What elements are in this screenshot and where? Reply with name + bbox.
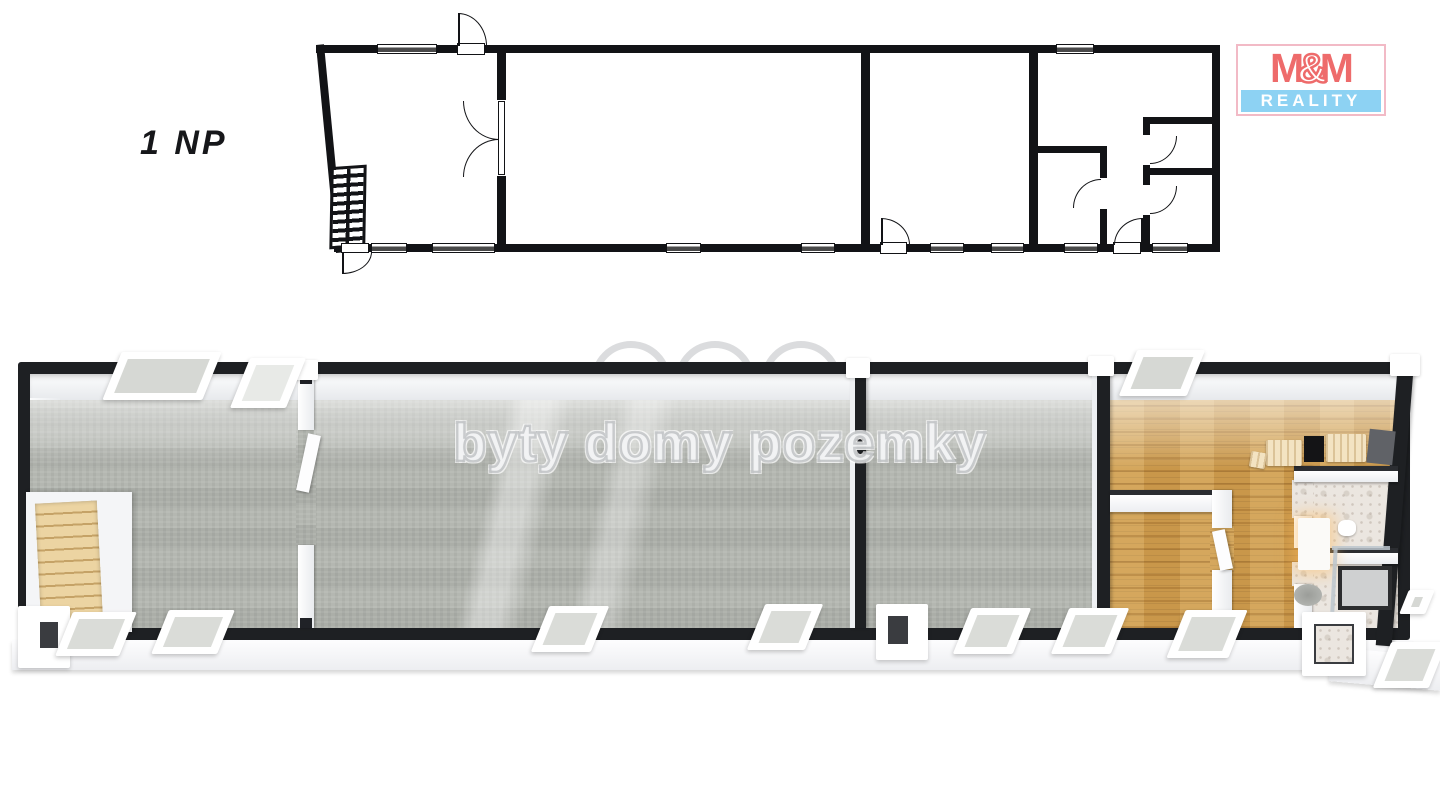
- double-door-arc-top: [463, 101, 499, 140]
- bath-mat: [1294, 584, 1322, 606]
- shower-tray: [1338, 566, 1392, 610]
- kitchen-cabinet: [1249, 451, 1268, 470]
- wall-inner-room-top: [1038, 146, 1104, 153]
- window-2d: [1056, 44, 1094, 54]
- window-glass: [114, 359, 210, 393]
- wall-cap: [1390, 354, 1420, 376]
- window-2d: [377, 44, 437, 54]
- kitchen-appliance: [1366, 429, 1395, 466]
- double-door-panel: [498, 101, 505, 175]
- door-arc: [1150, 186, 1177, 214]
- window-glass: [1131, 357, 1194, 389]
- kitchen-stove: [1304, 436, 1324, 462]
- wall-room3-hall: [1029, 53, 1038, 244]
- door-arc: [342, 252, 372, 274]
- floor-plan-2d: 1 NP: [0, 0, 1440, 300]
- window-3d: [102, 352, 221, 400]
- window-2d: [371, 243, 407, 253]
- wall-cap: [300, 618, 312, 628]
- window-glass: [1385, 649, 1436, 681]
- window-2d: [801, 243, 835, 253]
- wall3d-room3-hall: [1092, 374, 1110, 628]
- wall-cap: [1088, 356, 1114, 376]
- door-panel: [242, 365, 295, 401]
- window-glass: [67, 619, 125, 649]
- wall3d-room1-room2-lower: [298, 545, 314, 628]
- toilet: [1338, 520, 1356, 536]
- door-arc: [1150, 136, 1177, 164]
- door-arc: [1073, 179, 1101, 208]
- window-glass: [163, 617, 223, 647]
- door-opening-3d: [40, 622, 58, 648]
- floor-plan-3d: byty domy pozemky: [0, 330, 1440, 810]
- window-2d: [930, 243, 964, 253]
- window-2d: [432, 243, 495, 253]
- window-glass: [543, 613, 598, 645]
- window-2d: [991, 243, 1024, 253]
- watermark-text: byty domy pozemky: [440, 412, 1000, 474]
- window-glass: [965, 615, 1020, 647]
- wall-room2-room3: [861, 53, 870, 244]
- door-arc: [1114, 218, 1143, 245]
- wall3d-inner-room-right-upper: [1212, 490, 1232, 528]
- window-2d: [666, 243, 701, 253]
- floor-label: 1 NP: [140, 124, 228, 163]
- kitchen-counter: [1266, 440, 1302, 466]
- window-glass: [1063, 615, 1118, 647]
- kitchen-counter: [1326, 434, 1366, 462]
- door-opening-3d: [888, 616, 908, 644]
- double-door-arc-bottom: [463, 139, 499, 177]
- wall-bath-top: [1143, 117, 1212, 124]
- bathroom-vanity: [1298, 518, 1330, 570]
- staircase-2d: [329, 165, 366, 250]
- window-glass: [1411, 597, 1423, 607]
- wall-bath-middle: [1150, 168, 1212, 175]
- shower-glass-front: [1332, 546, 1390, 550]
- window-glass: [1178, 617, 1236, 651]
- window-2d: [1152, 243, 1188, 253]
- door-arc: [458, 13, 487, 46]
- window-glass: [759, 611, 812, 643]
- window-2d: [1064, 243, 1098, 253]
- wall3d-bath-top: [1294, 466, 1398, 482]
- wall-right: [1212, 45, 1220, 252]
- floor-plan-page: 1 NP: [0, 0, 1440, 810]
- wall-cap: [846, 358, 870, 378]
- logo-mm-text: M&M: [1238, 46, 1384, 88]
- mm-reality-logo: M&M REALITY: [1236, 44, 1386, 116]
- door-arc: [881, 218, 910, 245]
- logo-ampersand: &: [1297, 45, 1325, 91]
- logo-reality-text: REALITY: [1239, 88, 1383, 114]
- entrance-step: [1314, 624, 1354, 664]
